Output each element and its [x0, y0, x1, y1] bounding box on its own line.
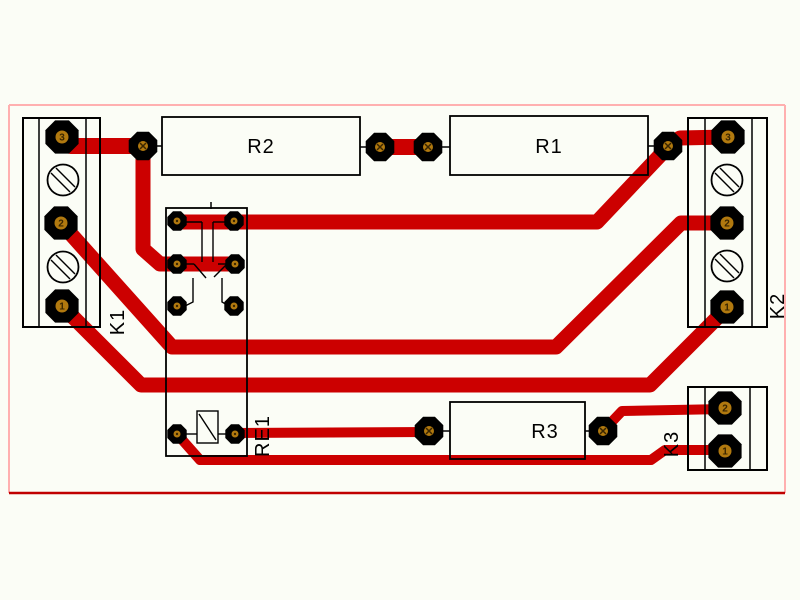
pad-re1-coil-a: [167, 424, 186, 443]
k3-label: K3: [661, 431, 683, 457]
copper-traces: [61, 137, 728, 460]
trace-r2p1-re1-mid: [143, 146, 235, 264]
k2-label: K2: [767, 293, 789, 319]
pad-k1-3: 3: [45, 120, 78, 153]
k1-screw-1: [48, 165, 79, 196]
pad-number-k1-1: 1: [59, 302, 65, 313]
pad-k3-1: 1: [708, 434, 741, 467]
pad-r2-2: [366, 133, 395, 162]
pcb-layout-canvas: 32132121 R2 R1 R3 K1 K2 K3 RE1: [0, 0, 800, 600]
pad-k2-3: 3: [711, 120, 744, 153]
pad-r3-1: [415, 417, 444, 446]
r1-label: R1: [535, 136, 563, 158]
pad-number-k3-2: 2: [722, 404, 728, 415]
pad-k2-2: 2: [710, 206, 743, 239]
pad-number-k1-2: 2: [58, 219, 64, 230]
k1-label: K1: [107, 309, 129, 335]
re1-outline: [166, 202, 247, 456]
k2-screw-1: [712, 165, 743, 196]
pad-number-k2-2: 2: [724, 219, 730, 230]
pcb-board: 32132121 R2 R1 R3 K1 K2 K3 RE1: [0, 0, 800, 600]
pad-r3-2: [589, 417, 618, 446]
r3-outline: [450, 402, 585, 459]
pad-re1-1: [167, 211, 186, 230]
pad-r1-1: [414, 133, 443, 162]
pad-number-k3-1: 1: [722, 447, 728, 458]
pad-number-k1-3: 3: [59, 133, 65, 144]
trace-k1p2-k2p2: [61, 223, 727, 347]
pad-re1-2: [224, 211, 243, 230]
pad-number-k2-1: 1: [724, 303, 730, 314]
pad-k1-1: 1: [45, 289, 78, 322]
pad-r1-2: [654, 132, 683, 161]
pad-k3-2: 2: [708, 391, 741, 424]
re1-coil-symbol: [184, 411, 231, 443]
r2-label: R2: [247, 136, 275, 158]
pad-re1-3: [167, 254, 186, 273]
k1-screw-2: [48, 252, 79, 283]
pad-number-k2-3: 3: [725, 133, 731, 144]
pad-re1-5: [167, 296, 186, 315]
pad-k1-2: 2: [44, 206, 77, 239]
re1-label: RE1: [252, 415, 274, 457]
r3-label: R3: [531, 421, 559, 443]
pad-re1-4: [225, 254, 244, 273]
k2-screw-2: [712, 251, 743, 282]
pad-k2-1: 1: [710, 290, 743, 323]
pad-r2-1: [129, 132, 158, 161]
pad-re1-6: [224, 296, 243, 315]
trace-r3p2-k3p2: [603, 409, 725, 431]
pad-re1-coil-b: [225, 424, 244, 443]
